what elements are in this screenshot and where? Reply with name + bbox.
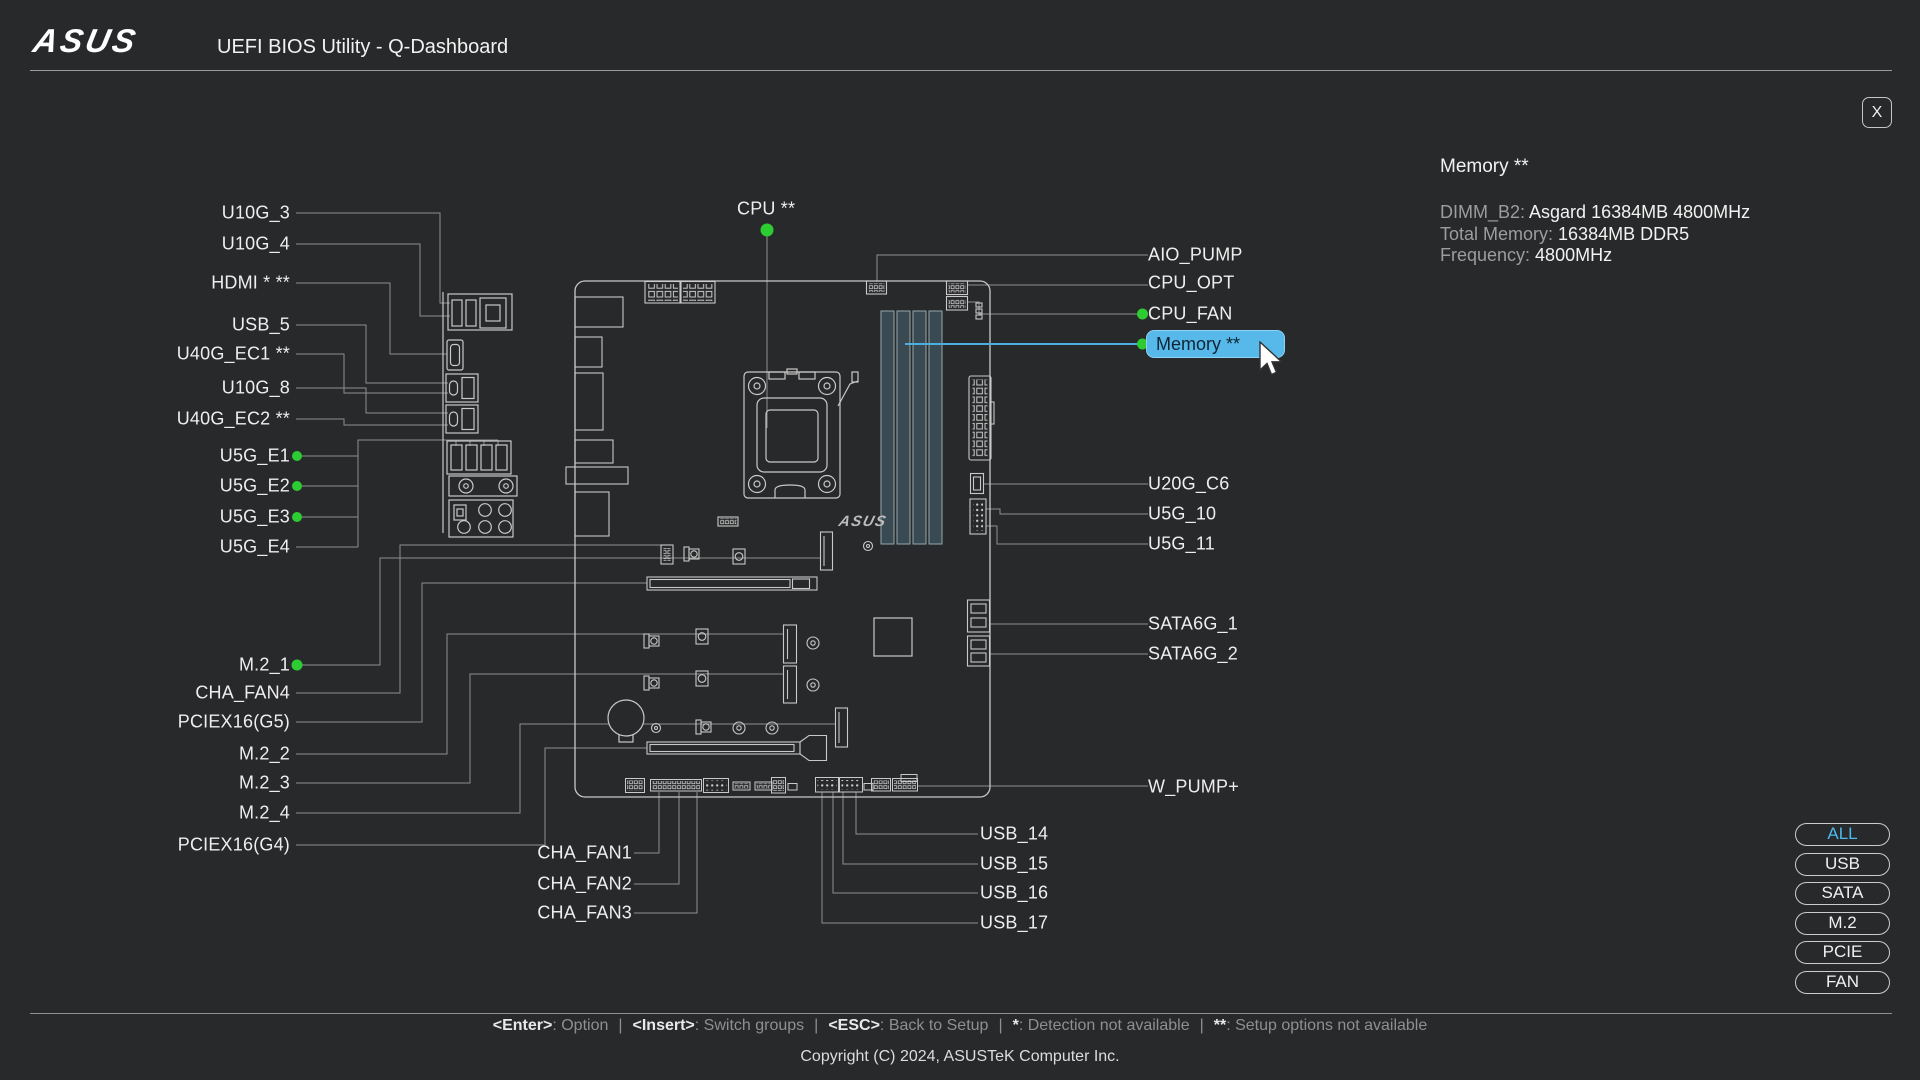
port-label-u5g-e2[interactable]: U5G_E2 <box>58 476 290 497</box>
port-label-usb-15[interactable]: USB_15 <box>980 854 1048 875</box>
hint-desc: : Option <box>552 1017 608 1034</box>
hint-desc: : Detection not available <box>1019 1017 1190 1034</box>
filter-button-group: ALL USB SATA M.2 PCIE FAN <box>1795 823 1890 1000</box>
port-label-hdmi[interactable]: HDMI * ** <box>58 273 290 294</box>
port-label-u40g-ec2[interactable]: U40G_EC2 ** <box>58 409 290 430</box>
front-panel-usb-connectors <box>970 474 986 535</box>
hint-desc: : Back to Setup <box>880 1017 989 1034</box>
m2-slots-and-standoffs <box>644 517 873 747</box>
port-label-w-pump[interactable]: W_PUMP+ <box>1148 777 1239 798</box>
port-label-cha-fan2[interactable]: CHA_FAN2 <box>400 874 632 895</box>
hint-key: <Enter> <box>493 1017 553 1034</box>
port-label-pciex16-g4[interactable]: PCIEX16(G4) <box>58 835 290 856</box>
port-label-u5g-e1[interactable]: U5G_E1 <box>58 446 290 467</box>
port-label-u5g-e4[interactable]: U5G_E4 <box>58 537 290 558</box>
port-label-u5g-10[interactable]: U5G_10 <box>1148 504 1216 525</box>
port-label-u5g-11[interactable]: U5G_11 <box>1148 534 1215 555</box>
footer-divider <box>30 1013 1892 1014</box>
port-label-cpu-opt[interactable]: CPU_OPT <box>1148 273 1234 294</box>
filter-button-sata[interactable]: SATA <box>1795 882 1890 905</box>
status-dot-m2-1 <box>292 660 303 671</box>
eps-power-connectors <box>645 282 715 304</box>
port-label-u10g-3[interactable]: U10G_3 <box>58 203 290 224</box>
sata-ports <box>968 600 990 666</box>
port-label-u20g-c6[interactable]: U20G_C6 <box>1148 474 1229 495</box>
port-label-u10g-8[interactable]: U10G_8 <box>58 378 290 399</box>
port-label-m2-1[interactable]: M.2_1 <box>58 655 290 676</box>
port-label-u5g-e3[interactable]: U5G_E3 <box>58 507 290 528</box>
port-label-usb-16[interactable]: USB_16 <box>980 883 1048 904</box>
port-label-aio-pump[interactable]: AIO_PUMP <box>1148 245 1243 266</box>
hint-desc: : Switch groups <box>695 1017 804 1034</box>
filter-button-all[interactable]: ALL <box>1795 823 1890 846</box>
status-dot-cpu <box>761 224 774 237</box>
port-label-usb-14[interactable]: USB_14 <box>980 824 1048 845</box>
pcie-slot-g4 <box>647 736 827 761</box>
copyright-text: Copyright (C) 2024, ASUSTeK Computer Inc… <box>0 1048 1920 1066</box>
cpu-socket <box>744 369 858 498</box>
port-label-sata6g-2[interactable]: SATA6G_2 <box>1148 644 1238 665</box>
status-dot-u5g-e3 <box>292 512 302 522</box>
port-label-pciex16-g5[interactable]: PCIEX16(G5) <box>58 712 290 733</box>
port-label-cha-fan3[interactable]: CHA_FAN3 <box>400 903 632 924</box>
port-label-cpu-fan[interactable]: CPU_FAN <box>1148 304 1232 325</box>
chipset <box>874 618 912 656</box>
ram-dimm-slots <box>881 311 942 544</box>
port-label-cha-fan4[interactable]: CHA_FAN4 <box>58 683 290 704</box>
port-label-m2-3[interactable]: M.2_3 <box>58 773 290 794</box>
hint-key: ** <box>1214 1017 1226 1034</box>
hint-key: <Insert> <box>633 1017 695 1034</box>
rear-io-ports <box>443 292 517 537</box>
q-dashboard-screen: ASUS UEFI BIOS Utility - Q-Dashboard X M… <box>0 0 1920 1080</box>
port-label-m2-4[interactable]: M.2_4 <box>58 803 290 824</box>
hint-desc: : Setup options not available <box>1226 1017 1427 1034</box>
bottom-headers <box>626 775 918 794</box>
status-dot-cpu-fan <box>1137 309 1148 320</box>
port-label-cpu[interactable]: CPU ** <box>737 199 795 220</box>
key-hints-bar: <Enter>: Option|<Insert>: Switch groups|… <box>0 1017 1920 1035</box>
port-label-u10g-4[interactable]: U10G_4 <box>58 234 290 255</box>
filter-button-pcie[interactable]: PCIE <box>1795 941 1890 964</box>
mouse-cursor-icon <box>1258 341 1288 379</box>
board-silkscreen-logo: ASUS <box>836 513 889 530</box>
filter-button-m2[interactable]: M.2 <box>1795 912 1890 935</box>
port-label-cha-fan1[interactable]: CHA_FAN1 <box>400 843 632 864</box>
status-dot-u5g-e2 <box>292 481 302 491</box>
filter-button-usb[interactable]: USB <box>1795 853 1890 876</box>
port-label-m2-2[interactable]: M.2_2 <box>58 744 290 765</box>
status-dot-u5g-e1 <box>292 451 302 461</box>
filter-button-fan[interactable]: FAN <box>1795 971 1890 994</box>
cmos-battery <box>608 700 644 742</box>
hint-key: <ESC> <box>828 1017 880 1034</box>
port-label-u40g-ec1[interactable]: U40G_EC1 ** <box>58 344 290 365</box>
port-label-usb-5[interactable]: USB_5 <box>58 315 290 336</box>
connector-lines <box>296 213 1148 923</box>
pcie-slot-g5 <box>647 577 817 590</box>
port-label-usb-17[interactable]: USB_17 <box>980 913 1048 934</box>
port-label-sata6g-1[interactable]: SATA6G_1 <box>1148 614 1238 635</box>
